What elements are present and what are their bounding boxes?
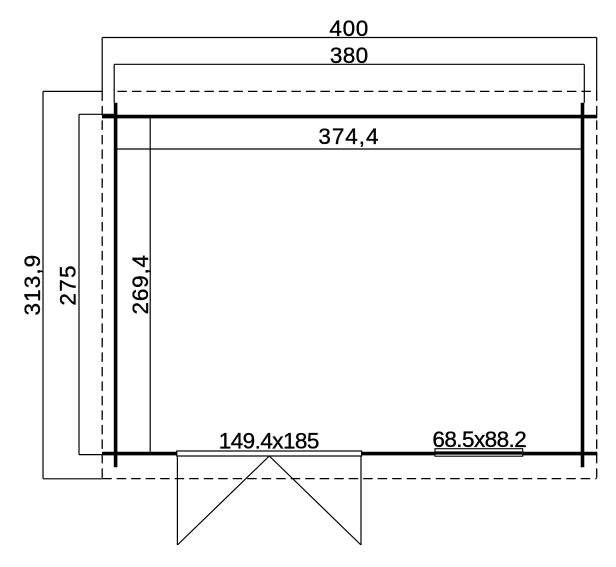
svg-text:313,9: 313,9 <box>20 254 45 316</box>
svg-text:380: 380 <box>330 43 369 68</box>
svg-text:275: 275 <box>56 264 81 305</box>
svg-text:269,4: 269,4 <box>128 254 153 314</box>
svg-text:68.5x88.2: 68.5x88.2 <box>432 427 526 452</box>
svg-text:400: 400 <box>329 16 369 41</box>
svg-text:149.4x185: 149.4x185 <box>219 429 319 454</box>
svg-text:374,4: 374,4 <box>318 124 379 149</box>
